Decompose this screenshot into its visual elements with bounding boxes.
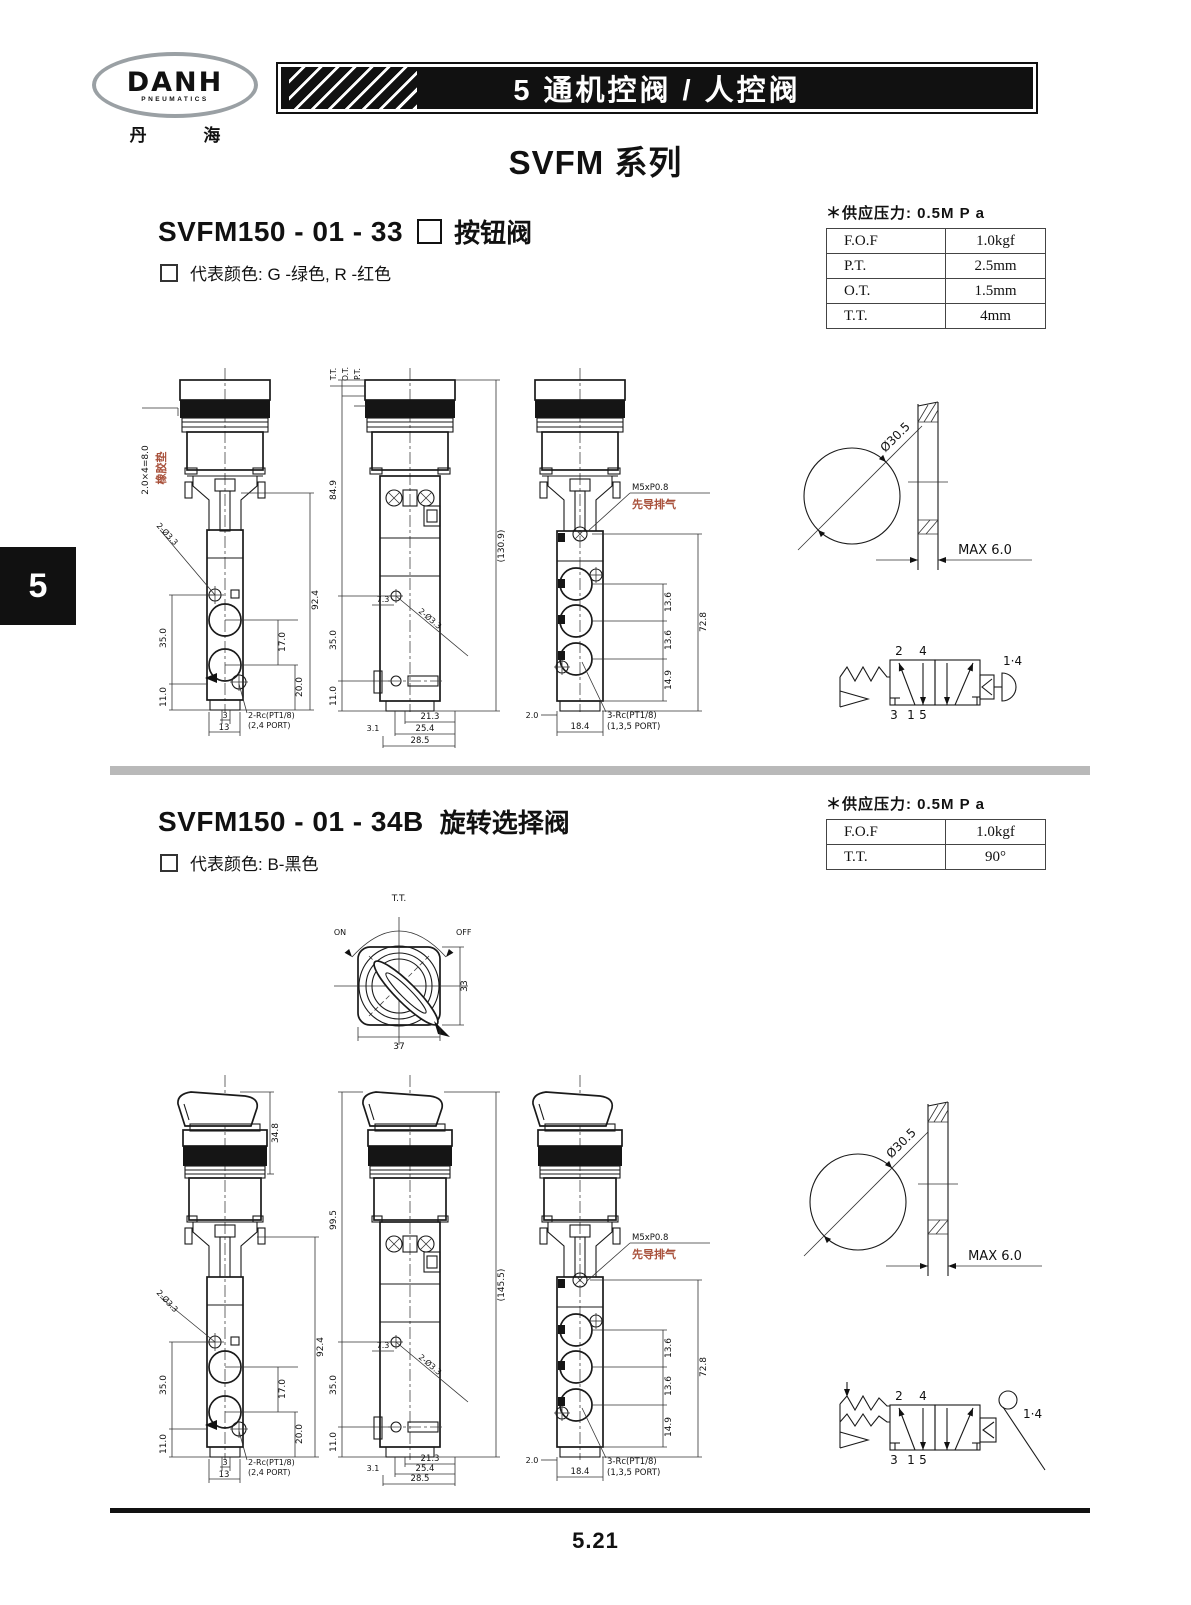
port-number: 1 [907, 1453, 915, 1467]
actuator-label: 1·4 [1003, 654, 1022, 668]
dim-label: 14.9 [664, 670, 674, 690]
port-callout: 2-Rc(PT1/8) [248, 1458, 295, 1467]
dim-label: 18.4 [571, 1467, 590, 1477]
dim-label: 3.1 [367, 1464, 380, 1473]
pilot-exhaust-label: 先导排气 [632, 497, 676, 511]
dim-label: 13.6 [664, 630, 674, 650]
color-note-text: 代表颜色: B-黑色 [190, 850, 318, 875]
rotary-selector-top-view: T.T. ON OFF 33 37 [320, 885, 570, 1053]
section2-spec: ＊供应压力: 0.5M P a F.O.F1.0kgf T.T.90° [826, 793, 1046, 870]
dim-label: 14.9 [664, 1417, 674, 1437]
logo-ellipse: DANH PNEUMATICS [92, 52, 258, 118]
port-callout: 3-Rc(PT1/8) [607, 1457, 657, 1467]
section1-dimension-drawings: 2.0×4=8.0 橡胶垫 2-Ø3.3 92.4 35.0 11.0 17.0… [120, 350, 780, 750]
section2-pneumatic-symbol: 2 4 3 1 5 1·4 [795, 1370, 1075, 1495]
port-callout-sub: (2,4 PORT) [248, 721, 291, 730]
dim-label: 17.0 [278, 1379, 288, 1399]
valve-port-view: M5xP0.8 先导排气 72.8 13.6 13.6 14.9 2.0 18.… [526, 1075, 710, 1481]
spec-key: O.T. [827, 279, 946, 304]
dim-label: 21.3 [421, 1454, 440, 1464]
dim-label: 35.0 [159, 628, 169, 648]
spec-key: P.T. [827, 254, 946, 279]
dim-label: 92.4 [316, 1337, 326, 1357]
dim-label: 2.0 [526, 711, 539, 720]
dim-label: 20.0 [295, 677, 305, 697]
color-box-placeholder [160, 264, 178, 282]
port-number: 1 [907, 708, 915, 722]
dim-label: 11.0 [159, 687, 169, 707]
dim-label: 35.0 [329, 1375, 339, 1395]
dim-label: 13.6 [664, 592, 674, 612]
dim-label: 13 [219, 723, 230, 733]
section1-pneumatic-symbol: 2 4 3 1 5 1·4 [795, 635, 1055, 740]
section2-color-note: 代表颜色: B-黑色 [160, 850, 318, 875]
valve-type-name: 旋转选择阀 [440, 803, 570, 840]
dim-label: 35.0 [159, 1375, 169, 1395]
dim-label: 28.5 [411, 1474, 430, 1484]
off-position-label: OFF [456, 928, 472, 937]
rubber-pad-label: 橡胶垫 [154, 452, 168, 485]
thread-callout: M5xP0.8 [632, 1233, 668, 1243]
color-note-text: 代表颜色: G -绿色, R -红色 [190, 260, 391, 285]
valve-port-view: M5xP0.8 先导排气 72.8 13.6 13.6 14.9 2.0 18.… [526, 368, 710, 736]
port-number: 2 [895, 644, 903, 658]
port-number: 5 [919, 708, 927, 722]
valve-type-name: 按钮阀 [454, 213, 532, 250]
table-row: F.O.F1.0kgf [827, 229, 1046, 254]
table-row: P.T.2.5mm [827, 254, 1046, 279]
panel-thickness-label: MAX 6.0 [958, 543, 1012, 558]
dim-label: 34.8 [271, 1123, 281, 1143]
dim-label: 2.0×4=8.0 [141, 445, 151, 495]
dim-label: 3.1 [367, 724, 380, 733]
spec-key: T.T. [827, 845, 946, 870]
spec-value: 4mm [946, 304, 1046, 329]
spec-value: 90° [946, 845, 1046, 870]
dim-label: 3 [222, 1458, 227, 1467]
dim-label: 3 [222, 711, 227, 720]
spec-table: F.O.F1.0kgf T.T.90° [826, 819, 1046, 870]
port-callout-sub: (2,4 PORT) [248, 1468, 291, 1477]
rotation-angle-label: T.T. [391, 894, 407, 904]
section-divider [110, 766, 1090, 775]
section2-panel-cutout: Ø30.5 MAX 6.0 [790, 1080, 1070, 1315]
side-tab-chapter: 5 [0, 547, 76, 625]
stroke-label: T.T. [329, 368, 338, 381]
dim-label: 13.6 [664, 1376, 674, 1396]
dim-label: 72.8 [699, 1357, 709, 1377]
dim-label: 11.0 [329, 1432, 339, 1452]
model-number: SVFM150 - 01 - 33 [158, 216, 403, 248]
spec-value: 1.5mm [946, 279, 1046, 304]
logo-brand-text: DANH [127, 67, 224, 98]
hole-callout: 2-Ø3.3 [155, 521, 181, 548]
section1-spec: ＊供应压力: 0.5M P a F.O.F1.0kgf P.T.2.5mm O.… [826, 202, 1046, 329]
port-number: 3 [890, 708, 898, 722]
cutout-diameter-label: Ø30.5 [883, 1125, 918, 1160]
dim-label: 11.0 [159, 1434, 169, 1454]
spec-value: 2.5mm [946, 254, 1046, 279]
dim-label: 99.5 [329, 1210, 339, 1230]
port-callout-sub: (1,3,5 PORT) [607, 1468, 660, 1478]
dim-label: 20.0 [295, 1424, 305, 1444]
spec-key: F.O.F [827, 820, 946, 845]
port-number: 3 [890, 1453, 898, 1467]
table-row: F.O.F1.0kgf [827, 820, 1046, 845]
dim-label: 21.3 [421, 712, 440, 722]
port-number: 4 [919, 644, 927, 658]
stroke-label: O.T. [341, 367, 350, 381]
dim-label: 33 [460, 980, 470, 991]
valve-front-view: 2.0×4=8.0 橡胶垫 2-Ø3.3 92.4 35.0 11.0 17.0… [141, 368, 321, 736]
dim-label: 2.0 [526, 1456, 539, 1465]
cutout-diameter-label: Ø30.5 [877, 419, 912, 454]
supply-pressure-note: ＊供应压力: 0.5M P a [826, 202, 1046, 223]
model-number: SVFM150 - 01 - 34B [158, 806, 424, 838]
table-row: T.T.4mm [827, 304, 1046, 329]
panel-thickness-label: MAX 6.0 [968, 1249, 1022, 1264]
hole-callout: 2-Ø3.3 [155, 1288, 181, 1315]
dim-label: (130.9) [497, 530, 507, 563]
valve-front-view: 34.8 92.4 2-Ø3.3 35.0 11.0 17.0 20.0 3 [155, 1075, 326, 1483]
section1-heading: SVFM150 - 01 - 33 按钮阀 [158, 213, 532, 250]
spec-key: T.T. [827, 304, 946, 329]
stroke-label: P.T. [353, 368, 362, 380]
dim-label: 28.5 [411, 736, 430, 746]
spec-key: F.O.F [827, 229, 946, 254]
footer-rule [110, 1508, 1090, 1513]
page-number: 5.21 [0, 1528, 1191, 1554]
dim-label: 7.3 [377, 1341, 390, 1350]
section1-panel-cutout: Ø30.5 MAX 6.0 [780, 390, 1060, 590]
section2-dimension-drawings: 34.8 92.4 2-Ø3.3 35.0 11.0 17.0 20.0 3 [120, 1055, 780, 1485]
catalog-page: DANH PNEUMATICS 丹 海 5 通机控阀 / 人控阀 SVFM 系列… [0, 0, 1191, 1605]
dim-label: 7.3 [377, 595, 390, 604]
dim-label: 37 [393, 1042, 404, 1052]
table-row: T.T.90° [827, 845, 1046, 870]
on-position-label: ON [334, 928, 346, 937]
dim-label: 72.8 [699, 612, 709, 632]
valve-side-view: T.T. O.T. P.T. 84.9 35.0 11.0 (130.9) 7.… [329, 367, 507, 748]
spec-value: 1.0kgf [946, 820, 1046, 845]
brand-logo: DANH PNEUMATICS 丹 海 [92, 52, 258, 146]
section2-heading: SVFM150 - 01 - 34B 旋转选择阀 [158, 803, 570, 840]
dim-label: 25.4 [416, 1464, 435, 1474]
supply-pressure-note: ＊供应压力: 0.5M P a [826, 793, 1046, 814]
dim-label: 18.4 [571, 722, 590, 732]
dim-label: 25.4 [416, 724, 435, 734]
pilot-exhaust-label: 先导排气 [632, 1247, 676, 1261]
valve-side-view: 99.5 35.0 11.0 (145.5) 7.3 2-Ø3.3 21.3 2… [329, 1075, 507, 1486]
banner-stripes-decoration [289, 67, 417, 109]
port-number: 4 [919, 1389, 927, 1403]
color-box-placeholder [160, 854, 178, 872]
series-title: SVFM 系列 [0, 136, 1191, 184]
port-callout: 3-Rc(PT1/8) [607, 711, 657, 721]
dim-label: 17.0 [278, 632, 288, 652]
spec-table: F.O.F1.0kgf P.T.2.5mm O.T.1.5mm T.T.4mm [826, 228, 1046, 329]
dim-label: 35.0 [329, 630, 339, 650]
port-number: 2 [895, 1389, 903, 1403]
table-row: O.T.1.5mm [827, 279, 1046, 304]
chapter-banner: 5 通机控阀 / 人控阀 [276, 62, 1038, 114]
color-box-placeholder [417, 219, 442, 244]
dim-label: 92.4 [311, 590, 321, 610]
logo-sub-text: PNEUMATICS [141, 96, 209, 103]
spec-value: 1.0kgf [946, 229, 1046, 254]
dim-label: 13.6 [664, 1338, 674, 1358]
section1-color-note: 代表颜色: G -绿色, R -红色 [160, 260, 391, 285]
port-callout-sub: (1,3,5 PORT) [607, 722, 660, 732]
dim-label: (145.5) [497, 1269, 507, 1302]
dim-label: 13 [219, 1470, 230, 1480]
chapter-title: 5 通机控阀 / 人控阀 [513, 67, 800, 109]
port-callout: 2-Rc(PT1/8) [248, 711, 295, 720]
thread-callout: M5xP0.8 [632, 483, 668, 493]
dim-label: 84.9 [329, 480, 339, 500]
dim-label: 11.0 [329, 686, 339, 706]
port-number: 5 [919, 1453, 927, 1467]
actuator-label: 1·4 [1023, 1407, 1042, 1421]
